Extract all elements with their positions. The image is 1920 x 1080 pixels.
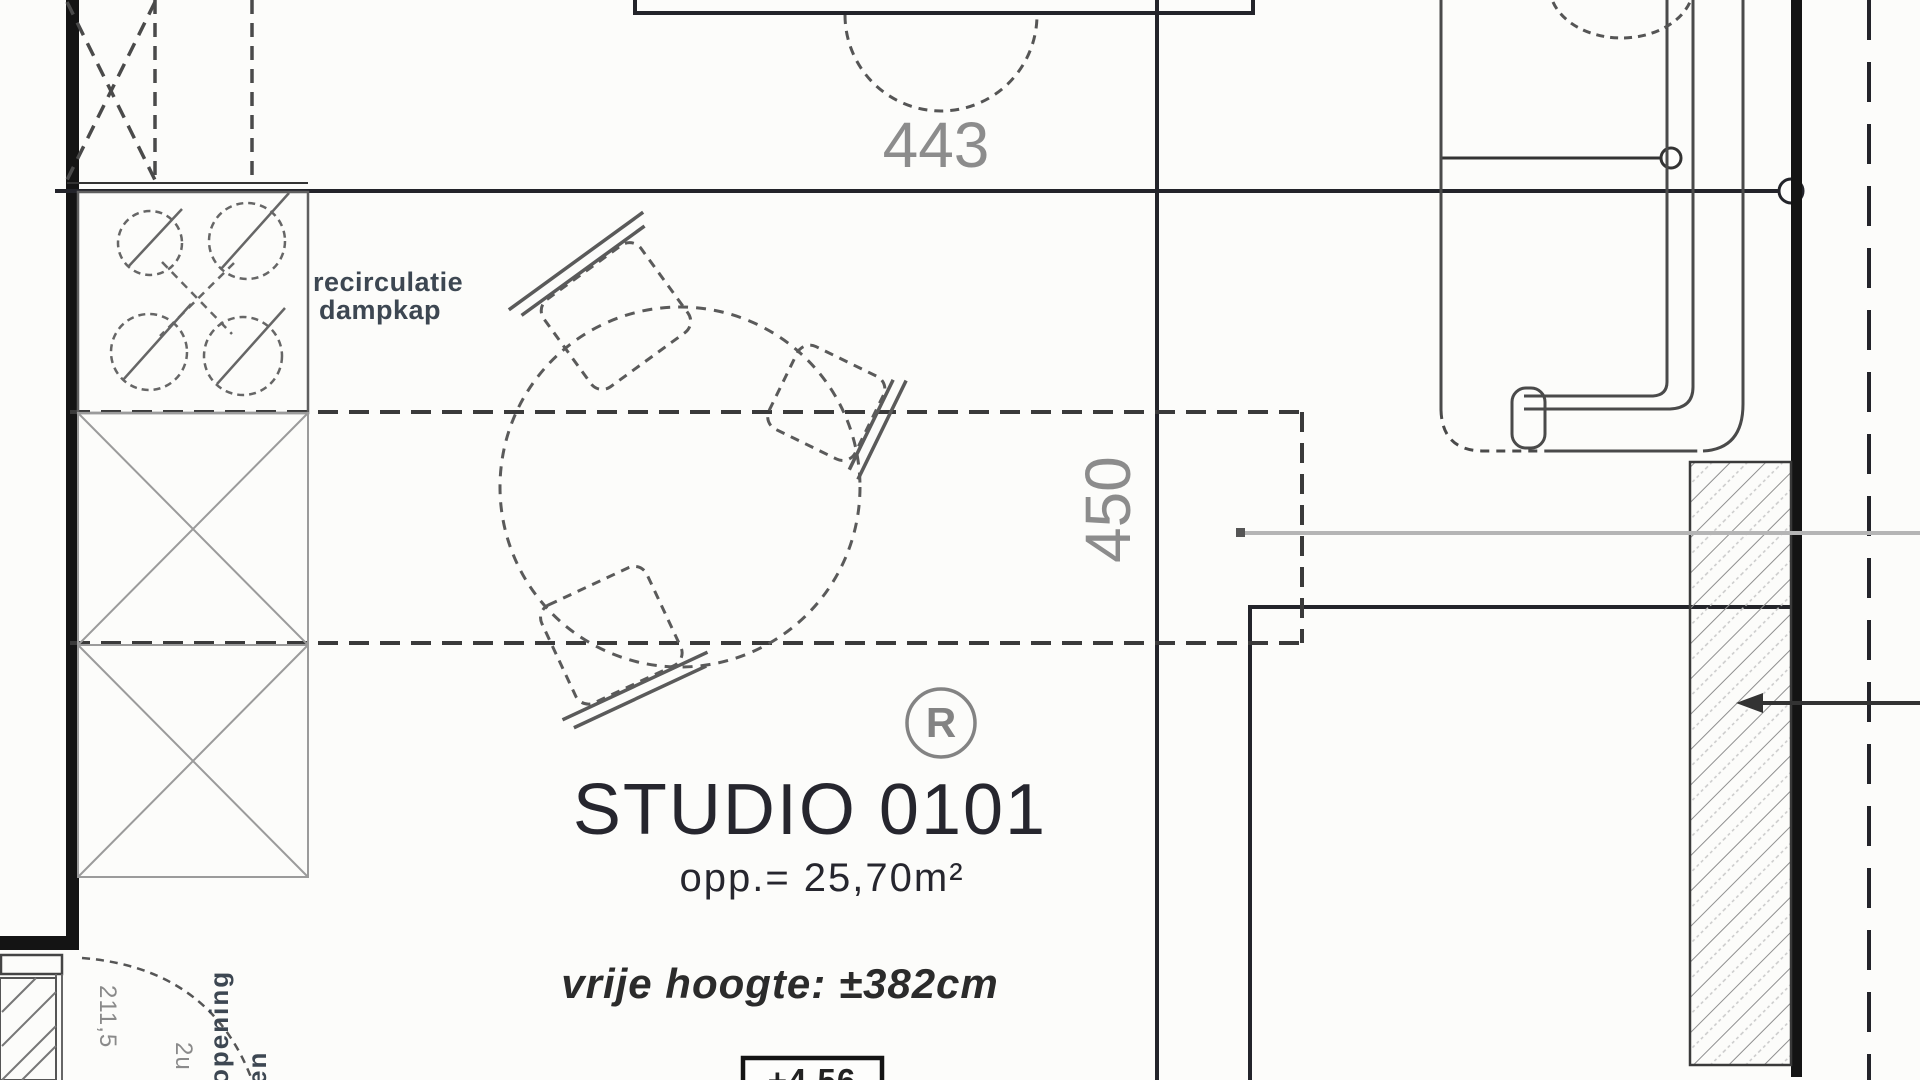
level-annotation: +4,56	[743, 1058, 882, 1080]
right-exterior-wall	[1791, 0, 1802, 1077]
hood-label-line1: recirculatie	[313, 267, 463, 297]
room-free-height: vrije hoogte: ±382cm	[561, 960, 999, 1007]
door-note-opening: opening	[204, 970, 234, 1080]
door-dimension: 211,5	[94, 985, 121, 1048]
hatched-masonry-wall	[1690, 462, 1791, 1065]
door-dimension-2: 2u	[170, 1042, 197, 1071]
room-area: opp.= 25,70m²	[679, 856, 964, 900]
dimension-width: 443	[883, 109, 990, 181]
level-value: +4,56	[768, 1062, 857, 1080]
room-name: STUDIO 0101	[573, 770, 1047, 850]
dimension-depth: 450	[1072, 456, 1144, 563]
door-note-en: en	[242, 1051, 272, 1080]
left-wall-bottom-stub	[0, 936, 66, 950]
leader-dot	[1236, 528, 1245, 537]
ref-marker-letter: R	[926, 699, 956, 746]
reference-circle-marker-sofa	[1661, 148, 1681, 168]
floor-plan: R +4,56 443 450 recirculatie dampkap STU…	[0, 0, 1920, 1080]
hood-label-line2: dampkap	[319, 295, 441, 325]
